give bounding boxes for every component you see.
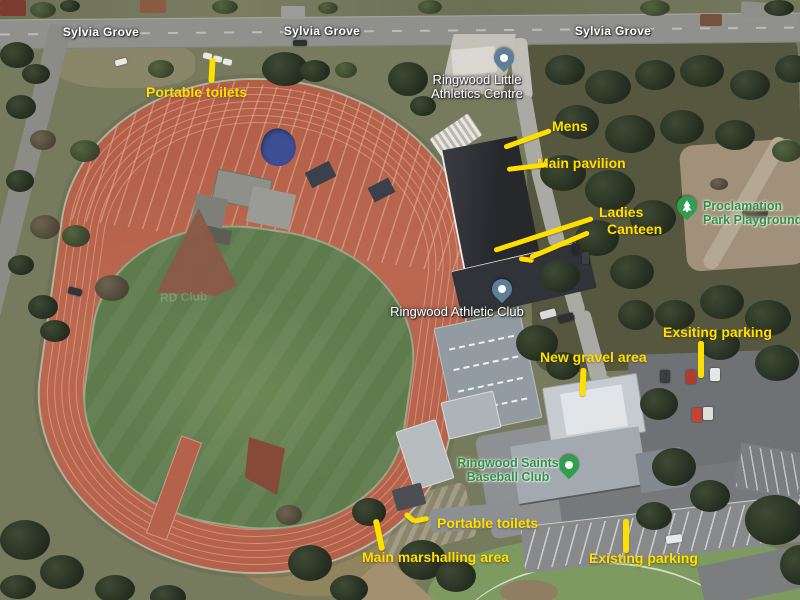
tree xyxy=(0,575,36,599)
tree xyxy=(418,0,442,14)
tree xyxy=(28,295,58,319)
tree xyxy=(605,115,655,153)
ground-watermark: RD Club xyxy=(160,289,208,305)
annotation-portable-toilets-bottom: Portable toilets xyxy=(437,515,538,531)
tree xyxy=(6,170,34,192)
tree xyxy=(60,0,80,12)
tree xyxy=(0,520,50,560)
tree xyxy=(95,275,129,301)
street-label-sylvia-grove-1: Sylvia Grove xyxy=(63,25,139,39)
roof-panel xyxy=(560,384,628,435)
annotation-mens: Mens xyxy=(552,118,588,134)
annotation-new-gravel-area: New gravel area xyxy=(540,349,647,365)
car xyxy=(582,252,589,264)
car xyxy=(692,408,702,422)
car xyxy=(660,370,670,383)
tree xyxy=(764,0,794,16)
annotation-canteen: Canteen xyxy=(607,221,662,237)
annotation-marker-existing-parking xyxy=(623,519,629,553)
tree xyxy=(30,130,56,150)
poi-label-line: Ringwood Saints xyxy=(457,456,558,470)
tree xyxy=(40,320,70,342)
car xyxy=(686,370,696,384)
poi-label-line: Park Playground xyxy=(703,213,800,227)
annotation-marker-new-gravel-area xyxy=(580,368,586,396)
tree xyxy=(745,495,800,545)
tree xyxy=(652,448,696,486)
annotation-main-pavilion: Main pavilion xyxy=(537,155,626,171)
tree xyxy=(540,260,580,292)
tree xyxy=(640,388,678,420)
tree xyxy=(8,255,34,275)
dirt-circle xyxy=(500,580,558,600)
tree xyxy=(318,2,338,14)
satellite-map[interactable]: RD Club xyxy=(0,0,800,600)
tree xyxy=(700,285,744,319)
tree xyxy=(30,215,60,239)
tree xyxy=(610,255,654,289)
tree-pin-icon xyxy=(681,200,693,212)
poi-label-proclamation-playground[interactable]: Proclamation Park Playground xyxy=(703,199,800,227)
annotation-portable-toilets-top: Portable toilets xyxy=(146,84,247,100)
tree xyxy=(636,502,672,530)
tree xyxy=(585,70,631,104)
tree xyxy=(618,300,654,330)
tree xyxy=(62,225,90,247)
rooftop xyxy=(281,6,305,19)
tree xyxy=(730,70,770,100)
poi-label-ringwood-athletic-club[interactable]: Ringwood Athletic Club xyxy=(390,305,524,319)
play-structure xyxy=(710,178,728,190)
car xyxy=(293,40,307,46)
tree xyxy=(95,575,135,600)
poi-label-baseball-club[interactable]: Ringwood Saints Baseball Club xyxy=(457,456,558,484)
annotation-exsiting-parking: Exsiting parking xyxy=(663,324,772,340)
rooftop xyxy=(700,14,722,26)
rooftop xyxy=(0,0,26,16)
tree xyxy=(330,575,368,600)
tree xyxy=(150,585,186,600)
portable-toilet-unit xyxy=(222,58,232,66)
tree xyxy=(545,55,585,85)
tree xyxy=(352,498,386,526)
tree xyxy=(755,345,799,381)
tree xyxy=(276,505,302,525)
tree xyxy=(40,555,84,589)
tree xyxy=(680,55,724,87)
tree xyxy=(300,60,330,82)
tree xyxy=(388,62,428,96)
poi-label-line: Ringwood Little xyxy=(431,73,523,87)
tree xyxy=(690,480,730,512)
poi-label-line: Ringwood Athletic Club xyxy=(390,305,524,319)
poi-label-line: Proclamation xyxy=(703,199,800,213)
street-label-sylvia-grove-3: Sylvia Grove xyxy=(575,24,651,38)
tree xyxy=(660,110,704,144)
parking-stripes xyxy=(736,445,800,497)
tree xyxy=(30,2,56,18)
tree xyxy=(715,120,755,150)
tree xyxy=(288,545,332,581)
tree xyxy=(640,0,670,16)
tree xyxy=(6,95,36,119)
tree xyxy=(335,62,357,78)
annotation-marker-exsiting-parking xyxy=(698,341,704,378)
car xyxy=(710,368,720,381)
tree xyxy=(70,140,100,162)
car xyxy=(572,243,579,255)
street-label-sylvia-grove-2: Sylvia Grove xyxy=(284,24,360,38)
tree xyxy=(148,60,174,78)
poi-label-line: Baseball Club xyxy=(457,470,558,484)
annotation-ladies: Ladies xyxy=(599,204,643,220)
tree xyxy=(22,64,50,84)
poi-label-ringwood-little-athletics[interactable]: Ringwood Little Athletics Centre xyxy=(431,73,523,101)
roof-vents xyxy=(454,356,518,372)
tree xyxy=(772,140,800,162)
car xyxy=(703,407,713,420)
annotation-existing-parking: Existing parking xyxy=(589,550,698,566)
tree xyxy=(635,60,675,90)
annotation-main-marshalling-area: Main marshalling area xyxy=(362,549,509,565)
roof-vents xyxy=(449,335,513,351)
poi-label-line: Athletics Centre xyxy=(431,87,523,101)
rooftop xyxy=(140,0,166,13)
tree xyxy=(212,0,238,14)
